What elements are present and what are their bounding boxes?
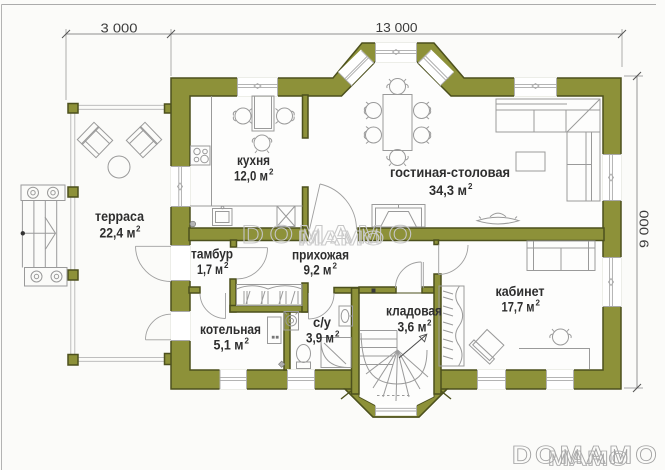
svg-text:2: 2: [468, 182, 473, 191]
svg-text:MAMO: MAMO: [548, 448, 628, 470]
svg-text:2: 2: [427, 319, 432, 328]
svg-text:2: 2: [536, 299, 541, 308]
svg-text:кладовая: кладовая: [386, 303, 442, 319]
svg-text:3 000: 3 000: [101, 21, 138, 36]
svg-text:9 000: 9 000: [637, 210, 652, 248]
svg-text:кабинет: кабинет: [496, 283, 545, 299]
svg-text:прихожая: прихожая: [292, 247, 349, 263]
svg-text:17,7 м: 17,7 м: [502, 299, 535, 315]
svg-text:2: 2: [245, 337, 250, 346]
svg-text:терраса: терраса: [95, 208, 144, 224]
svg-text:с/у: с/у: [313, 314, 331, 330]
svg-text:тамбур: тамбур: [191, 246, 233, 262]
svg-text:13 000: 13 000: [376, 20, 418, 35]
svg-text:3,9 м: 3,9 м: [306, 330, 334, 346]
svg-text:12,0 м: 12,0 м: [234, 168, 268, 184]
svg-text:34,3 м: 34,3 м: [429, 182, 467, 198]
svg-text:2: 2: [335, 330, 340, 339]
svg-text:кухня: кухня: [237, 152, 270, 168]
svg-text:2: 2: [136, 225, 141, 234]
svg-text:5,1 м: 5,1 м: [214, 337, 244, 353]
svg-text:9,2 м: 9,2 м: [304, 262, 332, 278]
svg-text:2: 2: [269, 168, 274, 177]
svg-text:22,4 м: 22,4 м: [100, 225, 136, 241]
svg-text:гостиная-столовая: гостиная-столовая: [390, 164, 510, 180]
svg-text:котельная: котельная: [200, 321, 261, 337]
svg-text:3,6 м: 3,6 м: [398, 319, 427, 335]
svg-text:2: 2: [224, 261, 229, 270]
svg-text:2: 2: [333, 262, 338, 271]
svg-text:1,7 м: 1,7 м: [197, 261, 223, 277]
